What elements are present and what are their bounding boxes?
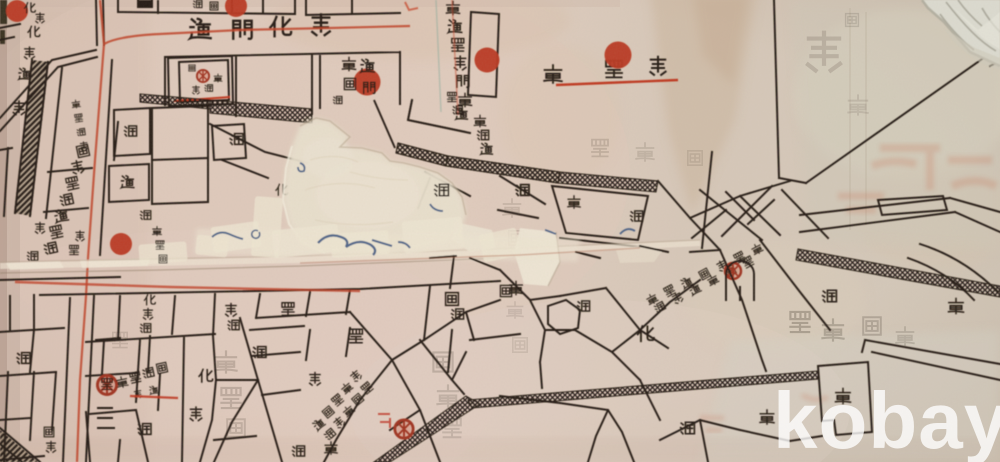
- svg-text:kobay: kobay: [773, 376, 1000, 462]
